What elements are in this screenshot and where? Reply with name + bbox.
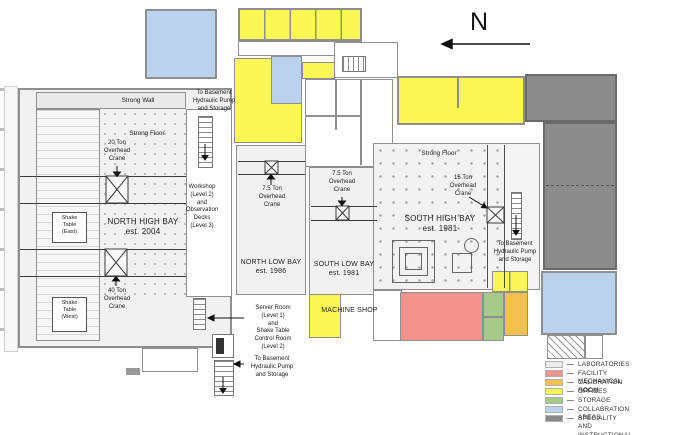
entrance-vestibule (142, 348, 198, 372)
legend-dash (567, 409, 574, 410)
to-basement-southeast-label: To Basement Hydraulic Pump and Storage (490, 241, 540, 264)
interior-wall (457, 78, 459, 108)
legend-swatch-calibration (545, 379, 563, 386)
crane-15t-label: 15 Ton Overhead Crane (442, 175, 484, 198)
calibration-room (504, 292, 528, 336)
workshop-label: Workshop (Level 2) and Observation Decks… (181, 184, 223, 231)
crane-20t-label: 20 Ton Overhead Crane (96, 140, 138, 163)
floor-plan: Shake Table (East) Shake Table (West) (0, 0, 680, 435)
legend-swatch-laboratories (545, 361, 563, 368)
legend-dash (567, 391, 574, 392)
legend-swatch-offices (545, 388, 563, 395)
legend-swatch-collaboration (545, 406, 563, 413)
speciality-lab-north (525, 74, 617, 122)
legend-dash (567, 418, 574, 419)
crane-40t-label: 40 Ton Overhead Crane (96, 288, 138, 311)
stairs-northwest (198, 116, 213, 168)
to-basement-northwest-label: To Basement Hydraulic Pump and Storage (188, 90, 240, 113)
office-small-east (302, 62, 335, 79)
shake-table-west: Shake Table (West) (52, 297, 87, 332)
equipment-circle (464, 238, 479, 253)
legend-swatch-speciality (545, 415, 563, 422)
stairs-southeast (547, 335, 585, 359)
stairs-south-entrance (214, 360, 234, 396)
strong-floor-south-label: Strong Floor (408, 150, 470, 158)
north-low-bay-label: NORTH LOW BAY est. 1986 (237, 258, 305, 276)
doormat (126, 368, 140, 375)
interior-wall (484, 316, 503, 318)
office-large-east (397, 76, 525, 125)
stairs-north-center (342, 56, 366, 72)
legend-dash (567, 382, 574, 383)
north-high-bay-label: NORTH HIGH BAY est. 2004 (100, 217, 186, 238)
legend-swatch-mechanical (545, 370, 563, 377)
to-basement-southwest-label: To Basement Hydraulic Pump and Storage (244, 356, 300, 379)
north-arrow (442, 40, 530, 49)
legend-label: SPECIALITY AND INSTRUCTIONAL LABORATORIE… (578, 415, 632, 435)
south-low-bay-label: SOUTH LOW BAY est. 1981 (310, 260, 378, 278)
facility-mechanical-room (400, 292, 483, 341)
crane-7-5t-north-label: 7.5 Ton Overhead Crane (251, 186, 293, 209)
equipment-pit-inner (405, 253, 422, 270)
office-row-north (238, 8, 362, 41)
shake-table-east: Shake Table (East) (52, 212, 87, 243)
stairs-south-high-bay (511, 192, 522, 240)
office-pair-south (492, 271, 528, 292)
interior-wall (335, 80, 337, 130)
server-room-ladder (193, 298, 206, 330)
shake-table-west-label: Shake Table (West) (53, 298, 86, 321)
crane-7-5t-south-label: 7.5 Ton Overhead Crane (321, 171, 363, 194)
legend-row: OFFICES (545, 388, 607, 396)
legend-dash (567, 400, 574, 401)
legend-dash (567, 364, 574, 365)
machine-shop-room (309, 294, 341, 338)
corridor-south (373, 290, 402, 341)
north-letter: N (470, 8, 488, 37)
legend-swatch-storage (545, 397, 563, 404)
legend-row: STORAGE (545, 397, 611, 405)
west-apron (4, 86, 18, 352)
south-high-bay-label: SOUTH HIGH BAY est. 1981 (394, 214, 486, 235)
legend-row: SPECIALITY AND INSTRUCTIONAL LABORATORIE… (545, 415, 632, 435)
legend-dash (567, 373, 574, 374)
interior-wall (360, 80, 362, 165)
legend-label: STORAGE (578, 397, 611, 405)
collaboration-inset (271, 56, 302, 104)
elevator-car (216, 338, 224, 354)
stair-landing-southeast (585, 335, 603, 359)
collaboration-room-north (145, 9, 217, 79)
interior-wall-dashed (546, 185, 614, 186)
server-room-label: Server Room (Level 1) and Shake Table Co… (246, 305, 300, 352)
equipment-pad (452, 253, 472, 273)
machine-shop-label: MACHINE SHOP (312, 306, 387, 315)
collaboration-room-south (541, 271, 617, 335)
strong-floor-north-label: Strong Floor (116, 130, 178, 138)
legend-label: LABORATORIES (578, 361, 630, 369)
legend-label: OFFICES (578, 388, 607, 396)
legend-row: LABORATORIES (545, 361, 630, 369)
interior-wall (306, 115, 360, 117)
strong-wall-label: Strong Wall (108, 97, 168, 105)
speciality-lab-east (543, 122, 617, 270)
shake-table-east-label: Shake Table (East) (53, 213, 86, 236)
